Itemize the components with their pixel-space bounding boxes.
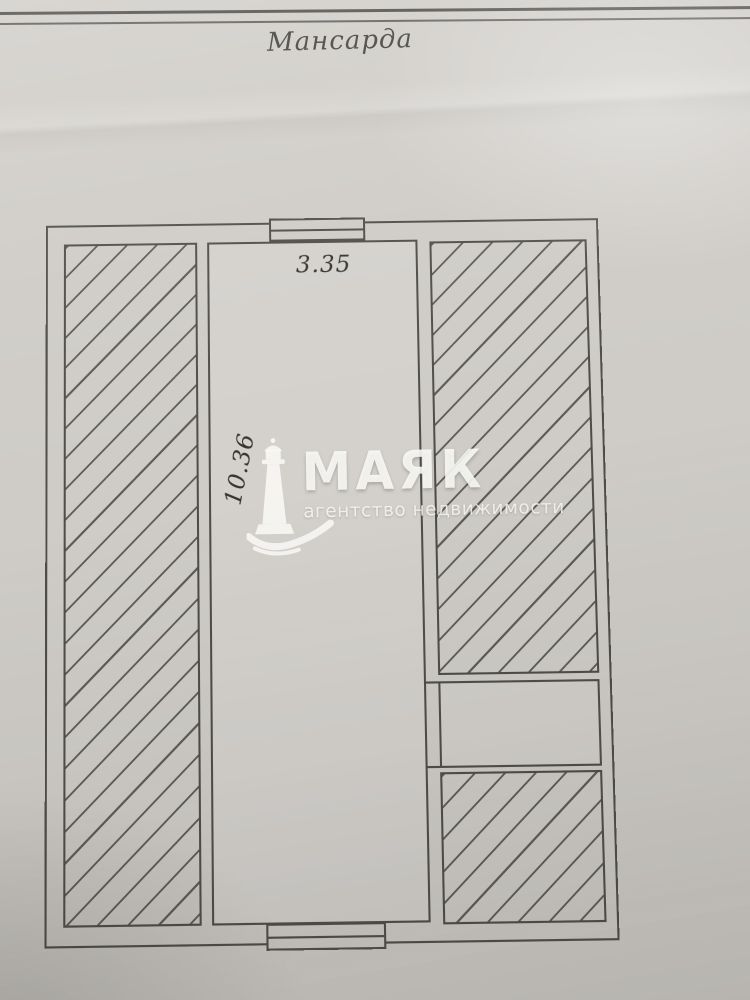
hatched-area-left [63, 243, 201, 928]
opening-band-right [438, 679, 602, 768]
photographed-floor-plan-page: { "document": { "title": "Мансарда" }, "… [0, 0, 750, 1000]
band-wall-stub-bottom [428, 766, 440, 768]
window-glass-line [268, 935, 384, 939]
main-room [207, 240, 431, 926]
band-wall-stub-top [426, 681, 438, 683]
paper-crease [0, 60, 750, 155]
document-rule-line-bottom [0, 17, 750, 25]
document-rule-line-top [0, 6, 750, 15]
width-dimension-label: 3.35 [248, 251, 399, 279]
floor-plan-outer-wall: 3.35 10.36 [44, 218, 619, 948]
window-glass-line [271, 228, 363, 231]
hatched-area-right-top [429, 239, 599, 675]
window-symbol-top [269, 217, 365, 241]
page-title: Мансарда [260, 24, 421, 58]
window-symbol-bottom [266, 922, 386, 951]
hatched-area-right-bottom [440, 770, 606, 924]
